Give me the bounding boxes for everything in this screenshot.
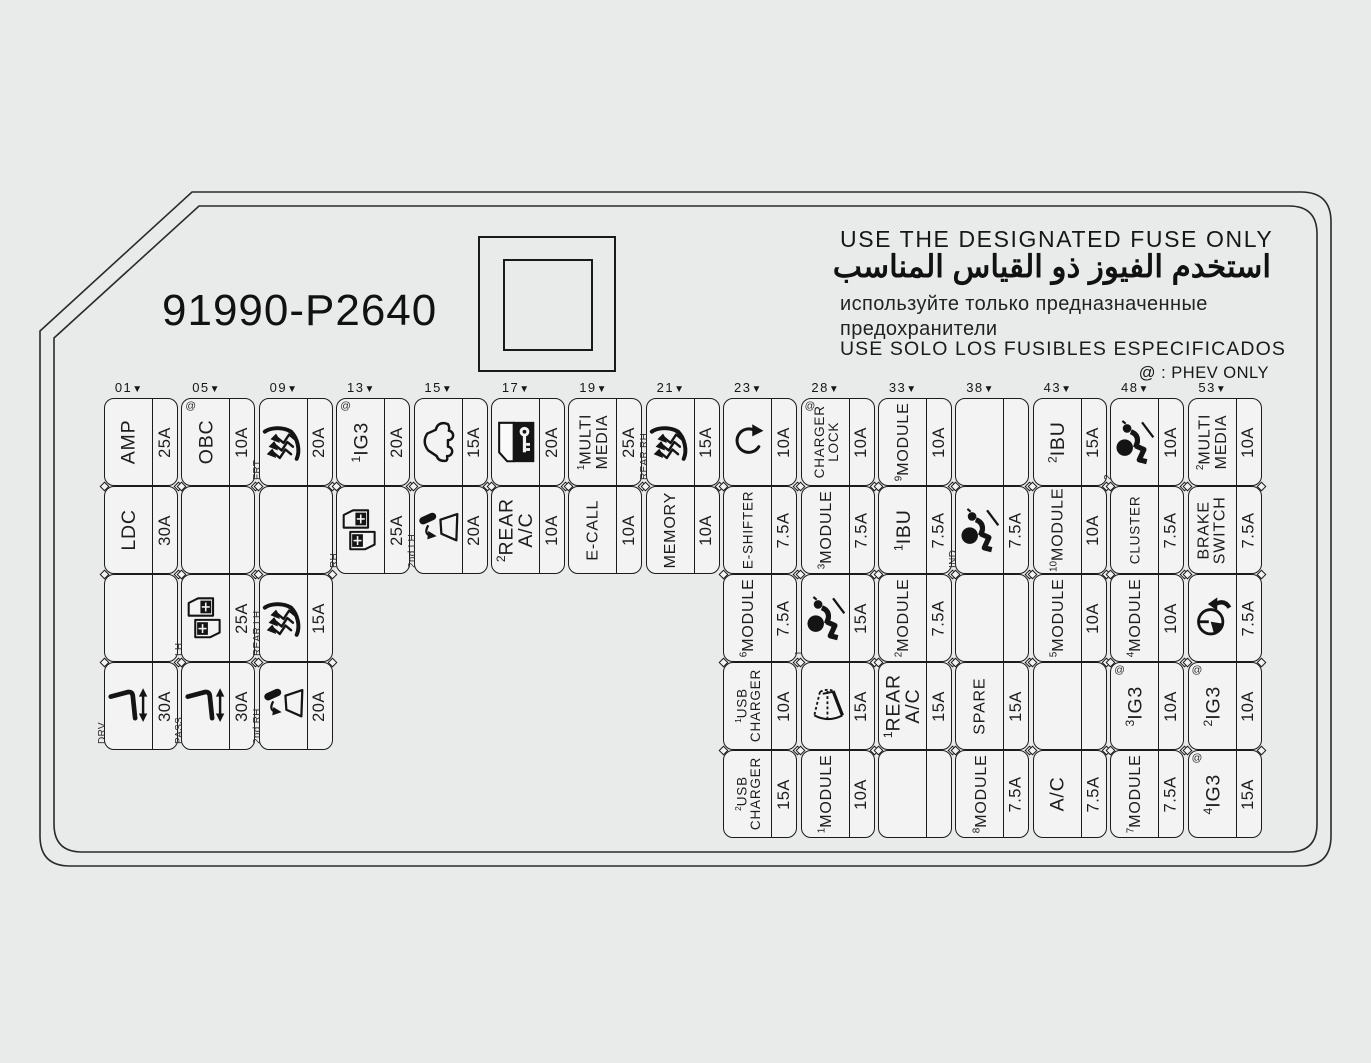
fuse-cell: 4MODULE10A: [1110, 574, 1184, 662]
fuse-cell: 20A: [491, 398, 565, 486]
fuse-function: 1: [802, 575, 851, 661]
column-header: 28▼: [801, 380, 850, 395]
fuse-position-label: REAR RH: [639, 433, 650, 480]
fuse-function: [724, 399, 773, 485]
fuse-amp-rating: 10A: [849, 399, 874, 485]
fuse-amp-rating: 25A: [384, 487, 409, 573]
fuse-cell: AMP25A: [104, 398, 178, 486]
fuse-label: OBC: [197, 420, 217, 465]
fuse-function: 1IBU: [879, 487, 928, 573]
fuse-label: 1USBCHARGER: [734, 669, 763, 742]
fuse-label: SPARE: [973, 677, 989, 734]
fuse-function: [415, 399, 464, 485]
fuse-index: 2: [733, 807, 743, 812]
fuse-amp-rating: 30A: [229, 663, 254, 749]
fuse-index: 3: [816, 564, 827, 570]
fuse-amp-rating: 10A: [1158, 399, 1183, 485]
down-triangle-icon: ▼: [364, 384, 374, 395]
fuse-function: 2: [1111, 399, 1160, 485]
fuse-position-label: PASS: [174, 717, 185, 744]
down-triangle-icon: ▼: [210, 384, 220, 395]
fuse-cell: 8MODULE7.5A: [955, 750, 1029, 838]
airbag-icon: [957, 487, 1004, 572]
column-header: 21▼: [646, 380, 695, 395]
seat-heater-icon: [261, 575, 308, 660]
fuse-index: 2: [1195, 465, 1206, 471]
fuse-position-label: RH: [329, 553, 340, 568]
fuse-cell-empty: [259, 486, 333, 574]
fuse-cell-empty: [104, 574, 178, 662]
fuse-function: 2IBU: [1034, 399, 1083, 485]
column-header: 17▼: [491, 380, 540, 395]
fuse-cell: 5MODULE10A: [1033, 574, 1107, 662]
fuse-cell: E-CALL10A: [568, 486, 642, 574]
fuse-function: 2MULTIMEDIA: [1189, 399, 1238, 485]
fuse-cell: 1IBU7.5A: [878, 486, 952, 574]
fuse-index: 1: [350, 456, 364, 463]
fuse-function: LDC: [105, 487, 154, 573]
vent-window-icon: [416, 487, 463, 572]
column-header: 13▼: [336, 380, 385, 395]
fuse-cell: 1IG3@20A: [336, 398, 410, 486]
fuse-amp-rating: 7.5A: [771, 487, 796, 573]
power-window-icon: [183, 575, 230, 660]
fuse-cell: 2REARA/C10A: [491, 486, 565, 574]
fuse-cell: E-SHIFTER7.5A: [723, 486, 797, 574]
fuse-amp-rating: [229, 487, 254, 573]
fuse-cell: A/C7.5A: [1033, 750, 1107, 838]
fuse-index: 3: [1124, 720, 1138, 727]
fuse-cell-empty: [955, 398, 1029, 486]
warning-arabic: استخدم الفيوز ذو القياس المناسب: [833, 249, 1271, 285]
fuse-cell: 1MULTIMEDIA25A: [568, 398, 642, 486]
steering-heat-icon: [1190, 575, 1237, 660]
fuse-amp-rating: 7.5A: [926, 575, 951, 661]
fuse-box-label: 91990-P2640 USE THE DESIGNATED FUSE ONLY…: [0, 0, 1371, 1063]
fuse-label: 1REARA/C: [882, 674, 924, 738]
fuse-amp-rating: 10A: [229, 399, 254, 485]
fuse-function: IND: [956, 487, 1005, 573]
fuse-cell-empty: [181, 486, 255, 574]
fuse-label: 2MODULE: [895, 579, 913, 658]
vent-window-icon: [261, 663, 308, 748]
fuse-amp-rating: 20A: [462, 487, 487, 573]
fuse-label: BRAKESWITCH: [1197, 496, 1230, 564]
fuse-index: 2: [1046, 456, 1060, 463]
fuse-label: 3MODULE: [817, 491, 835, 570]
fuse-amp-rating: 15A: [462, 399, 487, 485]
fuse-function: 2nd LH: [415, 487, 464, 573]
column-header: 19▼: [568, 380, 617, 395]
fuse-index: 6: [739, 652, 750, 658]
phev-marker: @: [1192, 752, 1203, 764]
fuse-label: 6MODULE: [740, 579, 758, 658]
fuse-function: 2USBCHARGER: [724, 751, 773, 837]
warning-russian: используйте только предназначенные предо…: [840, 292, 1208, 342]
fuse-function: LH: [182, 575, 231, 661]
fuse-index: 5: [1048, 652, 1059, 658]
fuse-function: 1USBCHARGER: [724, 663, 773, 749]
fuse-amp-rating: 20A: [307, 399, 332, 485]
fuse-function: DRV: [105, 663, 154, 749]
fuse-amp-rating: 7.5A: [849, 487, 874, 573]
down-triangle-icon: ▼: [1061, 384, 1071, 395]
fuse-cell: LDC30A: [104, 486, 178, 574]
fuse-label: CLUSTER: [1129, 496, 1143, 565]
fuse-amp-rating: 7.5A: [1158, 487, 1183, 573]
fuse-amp-rating: 7.5A: [1081, 751, 1106, 837]
fuse-label: MEMORY: [663, 492, 679, 569]
fuse-index: 1: [816, 828, 827, 834]
column-header: 09▼: [259, 380, 308, 395]
fuse-cell: PASS30A: [181, 662, 255, 750]
down-triangle-icon: ▼: [597, 384, 607, 395]
fuse-amp-rating: 7.5A: [1158, 751, 1183, 837]
fuse-amp-rating: 10A: [1158, 575, 1183, 661]
square-symbol: [478, 236, 616, 372]
fuse-label: 7MODULE: [1127, 755, 1145, 834]
fuse-amp-rating: 10A: [771, 399, 796, 485]
fuse-amp-rating: 10A: [926, 399, 951, 485]
down-triangle-icon: ▼: [674, 384, 684, 395]
rotary-icon: [725, 399, 772, 484]
fuse-function: [879, 751, 928, 837]
fuse-function: 1REARA/C: [879, 663, 928, 749]
fuse-amp-rating: 25A: [152, 399, 177, 485]
fuse-function: [182, 487, 231, 573]
fuse-amp-rating: 7.5A: [1236, 487, 1261, 573]
fuse-function: [1189, 575, 1238, 661]
wiper-icon: [803, 663, 850, 748]
fuse-position-label: LH: [174, 643, 185, 656]
power-seat-icon: [183, 663, 230, 748]
fuse-cell: 7.5A: [1188, 574, 1262, 662]
column-header: 33▼: [878, 380, 927, 395]
fuse-position-label: IND: [948, 550, 959, 568]
fuse-index: 10: [1048, 561, 1059, 572]
fuse-cell: CHARGERLOCK@10A: [801, 398, 875, 486]
down-triangle-icon: ▼: [1216, 384, 1226, 395]
fuse-function: REAR RH: [647, 399, 696, 485]
fuse-amp-rating: 10A: [1081, 487, 1106, 573]
fuse-label: 8MODULE: [972, 755, 990, 834]
fuse-function: 3IG3@: [1111, 663, 1160, 749]
column-header: 53▼: [1188, 380, 1237, 395]
fuse-cell: BRAKESWITCH7.5A: [1188, 486, 1262, 574]
phev-marker: @: [340, 400, 351, 412]
fuse-label: E-SHIFTER: [742, 491, 756, 569]
fuse-function: SPARE: [956, 663, 1005, 749]
fuse-label: CHARGERLOCK: [812, 405, 840, 478]
fuse-cell: OBC@10A: [181, 398, 255, 486]
power-window-icon: [338, 487, 385, 572]
fuse-cell-empty: [955, 574, 1029, 662]
phev-marker: @: [1114, 664, 1125, 676]
fuse-position-label: 2nd RH: [252, 708, 263, 744]
fuse-function: REAR LH: [260, 575, 309, 661]
fuse-position-label: REAR LH: [252, 611, 263, 656]
fuse-cell: REAR RH15A: [646, 398, 720, 486]
fuse-cell: 210A: [1110, 398, 1184, 486]
seat-heater-icon: [648, 399, 695, 484]
fuse-cell: RH25A: [336, 486, 410, 574]
fuse-label: E-CALL: [586, 500, 602, 561]
fuse-function: 1MODULE: [802, 751, 851, 837]
car-icon: [416, 399, 463, 484]
fuse-function: MEMORY: [647, 487, 696, 573]
fuse-cell: 15A: [801, 662, 875, 750]
fuse-index: 2: [1103, 474, 1114, 480]
fuse-amp-rating: 10A: [771, 663, 796, 749]
fuse-amp-rating: 10A: [1158, 663, 1183, 749]
fuse-function: RH: [337, 487, 386, 573]
fuse-cell: 115A: [801, 574, 875, 662]
fuse-cell: 2MODULE7.5A: [878, 574, 952, 662]
fuse-amp-rating: 10A: [1236, 399, 1261, 485]
column-header: 01▼: [104, 380, 153, 395]
fuse-cell: 10MODULE10A: [1033, 486, 1107, 574]
fuse-position-label: FRT: [252, 460, 263, 480]
down-triangle-icon: ▼: [906, 384, 916, 395]
fuse-cell: IND7.5A: [955, 486, 1029, 574]
fuse-label: A/C: [1048, 777, 1068, 812]
fuse-cell: MEMORY10A: [646, 486, 720, 574]
fuse-cell: FRT20A: [259, 398, 333, 486]
fuse-cell: 1MODULE10A: [801, 750, 875, 838]
column-header: 23▼: [723, 380, 772, 395]
fuse-cell: SPARE15A: [955, 662, 1029, 750]
fuse-amp-rating: [1081, 663, 1106, 749]
fuse-amp-rating: 25A: [229, 575, 254, 661]
fuse-amp-rating: 20A: [307, 663, 332, 749]
fuse-cell: 10A: [723, 398, 797, 486]
fuse-label: 2IG3: [1202, 686, 1224, 727]
fuse-amp-rating: [1003, 575, 1028, 661]
fuse-function: E-SHIFTER: [724, 487, 773, 573]
column-header: 05▼: [181, 380, 230, 395]
down-triangle-icon: ▼: [287, 384, 297, 395]
down-triangle-icon: ▼: [1138, 384, 1148, 395]
fuse-label: 5MODULE: [1049, 579, 1067, 658]
column-header: 48▼: [1110, 380, 1159, 395]
fuse-index: 1: [794, 650, 805, 656]
fuse-function: OBC@: [182, 399, 231, 485]
fuse-amp-rating: 10A: [1081, 575, 1106, 661]
fuse-function: 1IG3@: [337, 399, 386, 485]
fuse-function: [105, 575, 154, 661]
phev-marker: @: [185, 400, 196, 412]
fuse-cell: 2MULTIMEDIA10A: [1188, 398, 1262, 486]
airbag-icon: [1112, 399, 1159, 484]
fuse-amp-rating: [926, 751, 951, 837]
down-triangle-icon: ▼: [984, 384, 994, 395]
fuse-function: [956, 575, 1005, 661]
fuse-function: E-CALL: [569, 487, 618, 573]
fuse-function: FRT: [260, 399, 309, 485]
fuse-label: 1IG3: [351, 422, 373, 463]
fuse-index: 9: [894, 476, 905, 482]
fuse-cell: 15A: [414, 398, 488, 486]
square-symbol-inner: [503, 259, 593, 351]
fuse-index: 2: [894, 652, 905, 658]
fuse-amp-rating: 15A: [771, 751, 796, 837]
fuse-cell: 3IG3@10A: [1110, 662, 1184, 750]
fuse-cell: 2nd RH20A: [259, 662, 333, 750]
fuse-cell-empty: [878, 750, 952, 838]
fuse-index: 4: [1201, 808, 1215, 815]
fuse-function: AMP: [105, 399, 154, 485]
fuse-position-label: DRV: [97, 722, 108, 744]
fuse-index: 8: [971, 828, 982, 834]
fuse-function: 6MODULE: [724, 575, 773, 661]
fuse-function: 7MODULE: [1111, 751, 1160, 837]
fuse-amp-rating: 7.5A: [1003, 487, 1028, 573]
phev-marker: @: [805, 400, 816, 412]
fuse-amp-rating: 20A: [539, 399, 564, 485]
fuse-position-label: 2nd LH: [407, 534, 418, 568]
fuse-amp-rating: [1003, 399, 1028, 485]
fuse-amp-rating: 15A: [1236, 751, 1261, 837]
airbag-icon: [803, 575, 850, 660]
fuse-index: 1: [881, 731, 895, 738]
fuse-function: CLUSTER: [1111, 487, 1160, 573]
fuse-function: 8MODULE: [956, 751, 1005, 837]
fuse-index: 2: [494, 555, 508, 562]
fuse-function: [956, 399, 1005, 485]
seat-heater-icon: [261, 399, 308, 484]
fuse-amp-rating: 10A: [849, 751, 874, 837]
fuse-label: 3IG3: [1125, 686, 1147, 727]
power-seat-icon: [106, 663, 153, 748]
fuse-amp-rating: 15A: [849, 575, 874, 661]
fuse-function: 5MODULE: [1034, 575, 1083, 661]
fuse-amp-rating: 25A: [616, 399, 641, 485]
column-header: 38▼: [955, 380, 1004, 395]
fuse-cell: CLUSTER7.5A: [1110, 486, 1184, 574]
fuse-index: 4: [1126, 652, 1137, 658]
fuse-amp-rating: 15A: [307, 575, 332, 661]
fuse-function: [802, 663, 851, 749]
fuse-label: 1MULTIMEDIA: [577, 414, 611, 470]
fuse-function: [260, 487, 309, 573]
fuse-function: 4MODULE: [1111, 575, 1160, 661]
fuse-cell: 2IG3@10A: [1188, 662, 1262, 750]
fuse-label: 1IBU: [892, 509, 914, 551]
fuse-index: 1: [733, 719, 743, 724]
fuse-function: [1034, 663, 1083, 749]
fuse-amp-rating: 15A: [694, 399, 719, 485]
fuse-cell: DRV30A: [104, 662, 178, 750]
column-header: 15▼: [414, 380, 463, 395]
warning-spanish: USE SOLO LOS FUSIBLES ESPECIFICADOS: [840, 338, 1286, 361]
part-number: 91990-P2640: [162, 286, 437, 336]
fuse-function: 9MODULE: [879, 399, 928, 485]
fuse-label: 4IG3: [1202, 774, 1224, 815]
fuse-index: 1: [576, 465, 587, 471]
fuse-cell: 9MODULE10A: [878, 398, 952, 486]
fuse-amp-rating: 10A: [694, 487, 719, 573]
fuse-cell: 1REARA/C15A: [878, 662, 952, 750]
fuse-amp-rating: 15A: [926, 663, 951, 749]
fuse-cell: 7MODULE7.5A: [1110, 750, 1184, 838]
fuse-function: BRAKESWITCH: [1189, 487, 1238, 573]
fuse-cell: 2IBU15A: [1033, 398, 1107, 486]
fuse-cell: 4IG3@15A: [1188, 750, 1262, 838]
fuse-amp-rating: 7.5A: [1003, 751, 1028, 837]
fuse-function: 4IG3@: [1189, 751, 1238, 837]
down-triangle-icon: ▼: [442, 384, 452, 395]
fuse-function: 2nd RH: [260, 663, 309, 749]
fuse-amp-rating: 10A: [539, 487, 564, 573]
fuse-cell: 6MODULE7.5A: [723, 574, 797, 662]
fuse-cell-empty: [1033, 662, 1107, 750]
fuse-cell: 2USBCHARGER15A: [723, 750, 797, 838]
fuse-amp-rating: 7.5A: [771, 575, 796, 661]
fuse-label: 10MODULE: [1049, 488, 1067, 572]
fuse-label: 9MODULE: [895, 403, 913, 482]
fuse-amp-rating: 30A: [152, 487, 177, 573]
door-lock-key-icon: [493, 399, 540, 484]
fuse-function: A/C: [1034, 751, 1083, 837]
column-header: 43▼: [1033, 380, 1082, 395]
fuse-amp-rating: 10A: [1236, 663, 1261, 749]
fuse-function: 1MULTIMEDIA: [569, 399, 618, 485]
down-triangle-icon: ▼: [751, 384, 761, 395]
fuse-label: LDC: [120, 509, 140, 550]
fuse-index: 1: [891, 544, 905, 551]
fuse-cell: REAR LH15A: [259, 574, 333, 662]
fuse-label: AMP: [120, 420, 140, 465]
fuse-function: 2IG3@: [1189, 663, 1238, 749]
fuse-function: 2MODULE: [879, 575, 928, 661]
fuse-cell: 2nd LH20A: [414, 486, 488, 574]
fuse-amp-rating: 15A: [1003, 663, 1028, 749]
fuse-amp-rating: 15A: [849, 663, 874, 749]
fuse-cell: 3MODULE7.5A: [801, 486, 875, 574]
fuse-amp-rating: 15A: [1081, 399, 1106, 485]
down-triangle-icon: ▼: [519, 384, 529, 395]
fuse-amp-rating: 10A: [616, 487, 641, 573]
phev-marker: @: [1192, 664, 1203, 676]
fuse-cell: 1USBCHARGER10A: [723, 662, 797, 750]
fuse-index: 2: [1201, 720, 1215, 727]
fuse-function: [492, 399, 541, 485]
fuse-amp-rating: 7.5A: [1236, 575, 1261, 661]
fuse-label: 2IBU: [1047, 421, 1069, 463]
down-triangle-icon: ▼: [132, 384, 142, 395]
fuse-amp-rating: 20A: [384, 399, 409, 485]
fuse-label: 2REARA/C: [495, 498, 537, 562]
fuse-function: 10MODULE: [1034, 487, 1083, 573]
fuse-label: 2MULTIMEDIA: [1196, 414, 1230, 470]
fuse-function: CHARGERLOCK@: [802, 399, 851, 485]
fuse-index: 7: [1126, 828, 1137, 834]
fuse-label: 1MODULE: [817, 755, 835, 834]
down-triangle-icon: ▼: [829, 384, 839, 395]
fuse-function: 2REARA/C: [492, 487, 541, 573]
fuse-label: 4MODULE: [1127, 579, 1145, 658]
fuse-cell: LH25A: [181, 574, 255, 662]
fuse-function: PASS: [182, 663, 231, 749]
fuse-label: 2USBCHARGER: [734, 757, 763, 830]
fuse-function: 3MODULE: [802, 487, 851, 573]
